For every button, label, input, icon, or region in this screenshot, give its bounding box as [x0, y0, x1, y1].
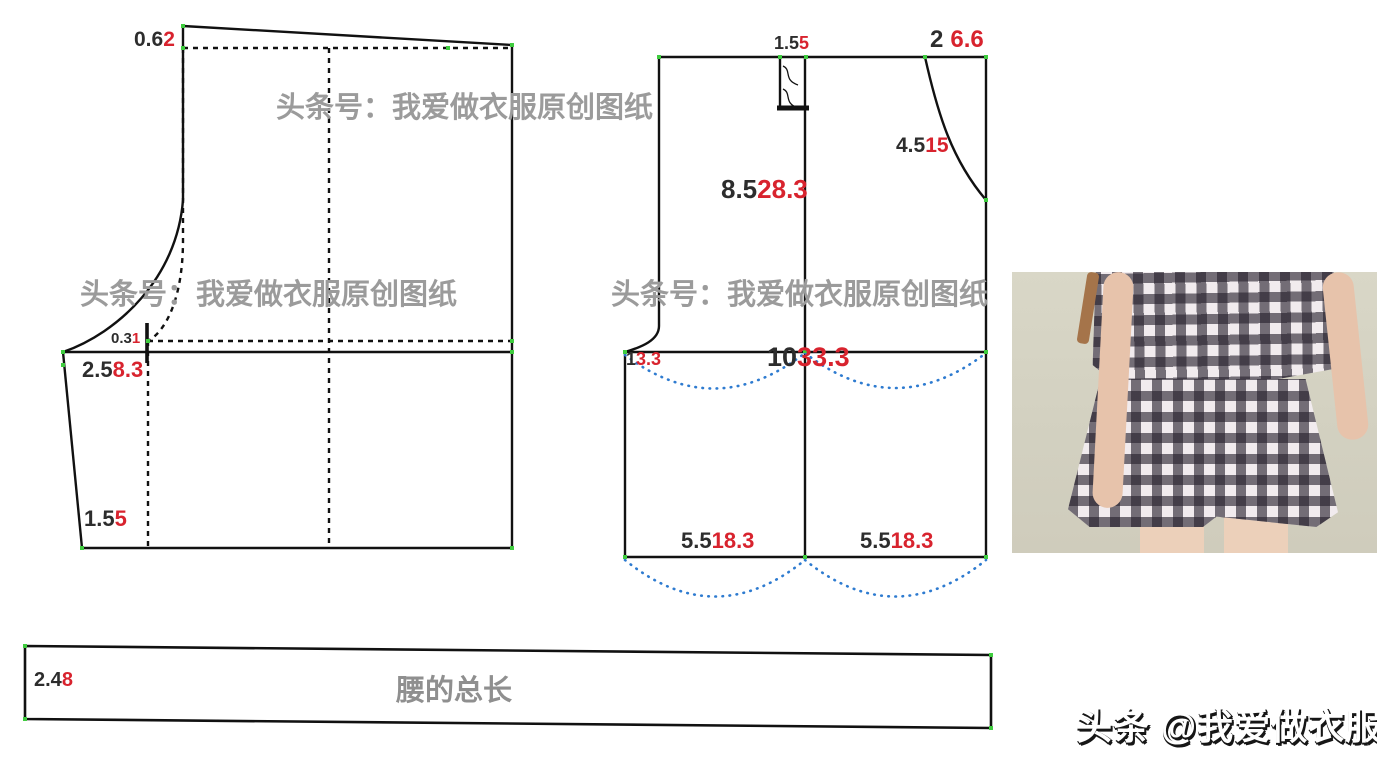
meas-adjusted: 18.3	[712, 528, 755, 553]
meas-base: 1.5	[84, 506, 115, 531]
meas-left-leg-hem: 5.518.3	[681, 529, 754, 552]
meas-top-drop: 0.62	[134, 29, 175, 51]
meas-adjusted: 5	[799, 33, 809, 53]
meas-adjusted: 2	[163, 28, 175, 51]
meas-hip-depth: 2.58.3	[82, 358, 143, 381]
meas-waist-notch: 0.31	[111, 331, 140, 347]
meas-waistband-height: 2.48	[34, 670, 73, 691]
meas-pocket-depth: 4.515	[896, 135, 949, 157]
meas-adjusted: 28.3	[757, 174, 808, 204]
control-nodes	[23, 24, 993, 730]
meas-base: 5.5	[860, 528, 891, 553]
meas-fly-width: 1.55	[774, 34, 809, 53]
meas-hip-width: 1033.3	[767, 343, 850, 371]
meas-front-rise: 8.528.3	[721, 176, 808, 203]
meas-base: 0.3	[111, 330, 132, 347]
meas-adjusted: 33.3	[797, 342, 850, 372]
fly-notch-squiggles	[783, 66, 798, 108]
meas-base: 10	[767, 342, 797, 372]
meas-base: 5.5	[681, 528, 712, 553]
meas-base: 0.6	[134, 28, 163, 51]
meas-adjusted: 6.6	[950, 26, 983, 53]
reference-photo	[1012, 272, 1377, 553]
meas-pocket-opening: 26.6	[930, 27, 984, 52]
meas-base: 8.5	[721, 174, 757, 204]
meas-adjusted: 1	[132, 330, 140, 347]
meas-hem-slant: 1.55	[84, 507, 127, 530]
watermark-mid-left: 头条号：我爱做衣服原创图纸	[80, 271, 457, 313]
meas-adjusted: 5	[115, 506, 127, 531]
brand-signature: 头条 @我爱做衣服	[1076, 698, 1377, 750]
meas-adjusted: 3.3	[636, 349, 661, 369]
watermark-top: 头条号：我爱做衣服原创图纸	[276, 84, 653, 126]
meas-adjusted: 18.3	[891, 528, 934, 553]
meas-base: 2.5	[82, 357, 113, 382]
sewing-pattern-sheet: 0.62 0.31 2.58.3 1.55 1.55 26.6 4.515 8.…	[0, 0, 1377, 772]
meas-base: 2.4	[34, 669, 62, 691]
meas-base: 1.5	[774, 33, 799, 53]
meas-base: 1	[626, 349, 636, 369]
waistband-title: 腰的总长	[396, 667, 512, 709]
meas-right-leg-hem: 5.518.3	[860, 529, 933, 552]
meas-crotch-extension: 13.3	[626, 350, 661, 369]
meas-adjusted: 8.3	[113, 357, 144, 382]
watermark-mid-right: 头条号：我爱做衣服原创图纸	[611, 271, 988, 313]
meas-adjusted: 15	[925, 134, 948, 157]
meas-base: 4.5	[896, 134, 925, 157]
meas-adjusted: 8	[62, 669, 73, 691]
meas-base: 2	[930, 26, 943, 53]
